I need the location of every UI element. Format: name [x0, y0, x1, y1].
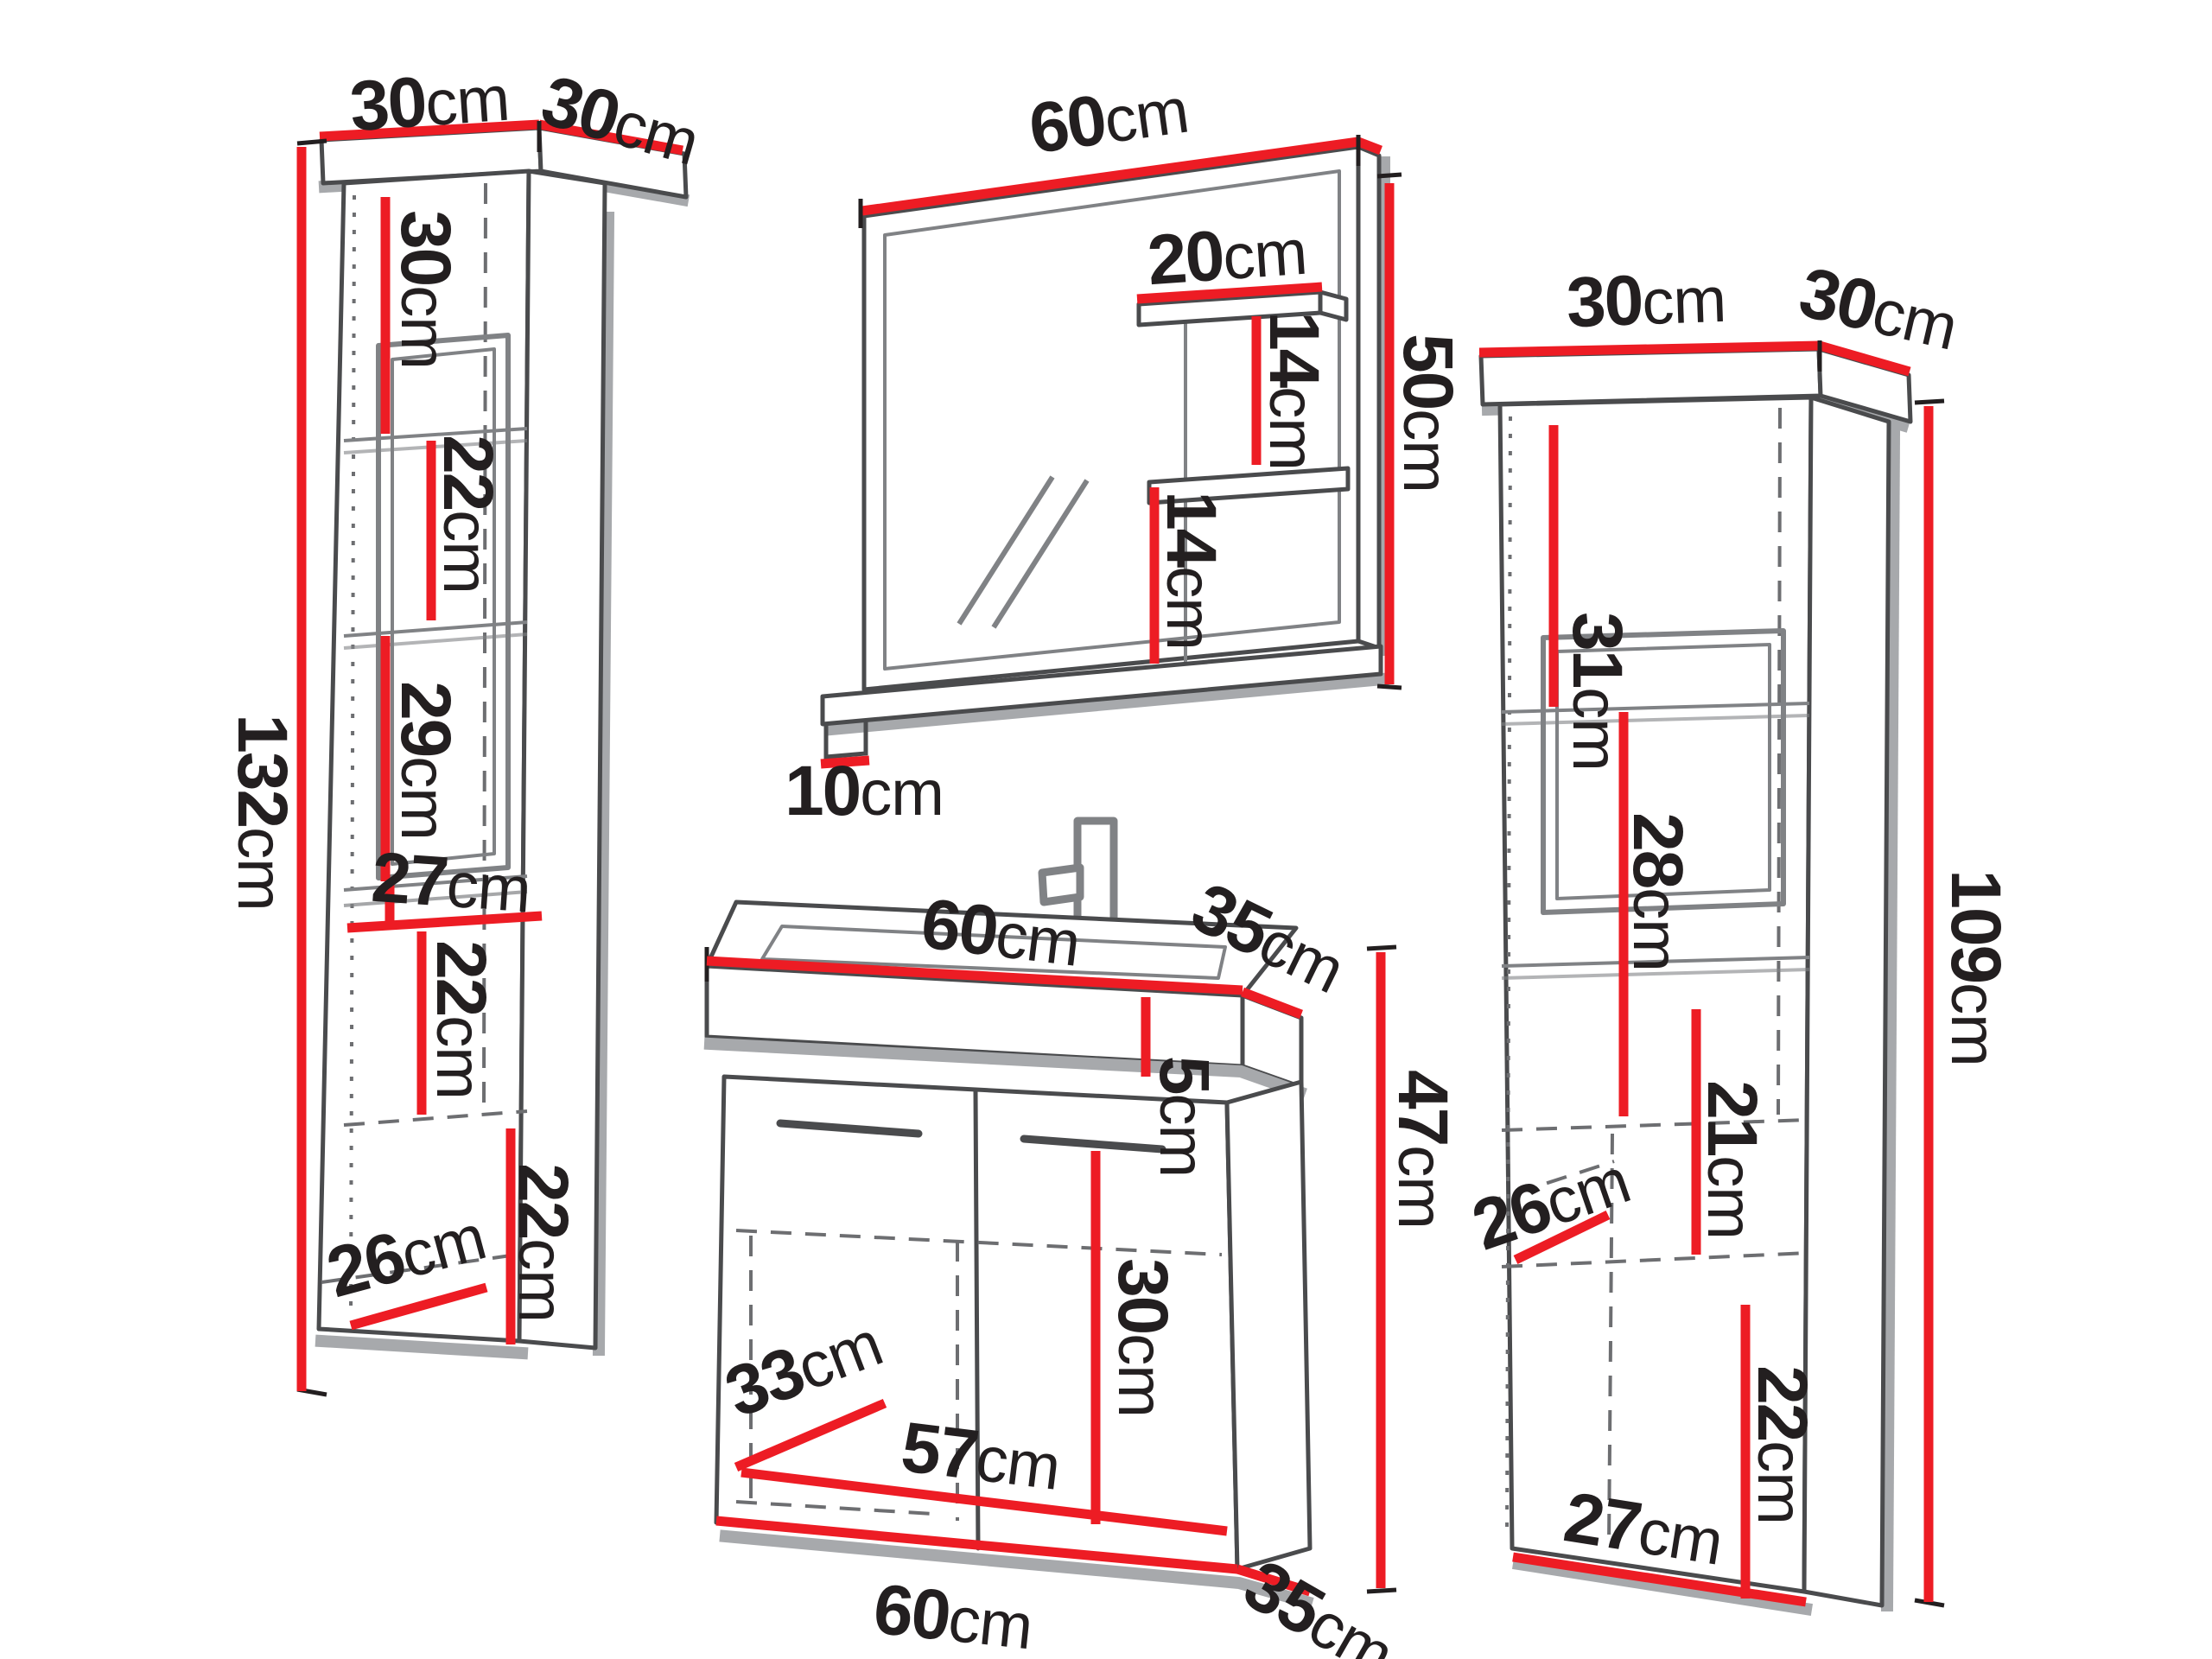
- unit: cm: [1938, 982, 2010, 1066]
- unit: cm: [423, 1015, 495, 1099]
- dim-mirror-shelf-gap-1: 14cm: [1258, 311, 1329, 470]
- unit: cm: [1390, 409, 1462, 493]
- unit: cm: [1385, 1145, 1457, 1229]
- dim-left-top-width: 30cm: [347, 61, 511, 143]
- value: 50: [1389, 334, 1467, 409]
- unit: cm: [1256, 386, 1328, 470]
- dim-right-section-3: 21cm: [1696, 1080, 1767, 1239]
- unit: cm: [972, 1422, 1064, 1503]
- value: 22: [429, 435, 507, 510]
- unit: cm: [1745, 1440, 1816, 1524]
- value: 60: [1025, 80, 1110, 168]
- dim-right-top-width: 30cm: [1566, 263, 1727, 339]
- left-cabinet-outline: [297, 121, 686, 1395]
- dim-right-section-1: 31cm: [1561, 612, 1632, 771]
- dim-right-height: 109cm: [1940, 869, 2011, 1065]
- unit: cm: [1620, 887, 1692, 971]
- value: 5: [1145, 1056, 1224, 1094]
- dim-sink-inner-height: 30cm: [1107, 1258, 1178, 1417]
- dim-sink-cabinet-height: 47cm: [1387, 1070, 1458, 1229]
- value: 20: [1145, 216, 1225, 300]
- dim-mirror-height: 50cm: [1392, 334, 1463, 493]
- dim-left-section-4: 22cm: [425, 940, 496, 1099]
- unit: cm: [388, 756, 460, 840]
- unit: cm: [1147, 1093, 1218, 1177]
- unit: cm: [1634, 1495, 1727, 1579]
- dim-left-section-3: 29cm: [390, 681, 461, 840]
- value: 29: [386, 681, 465, 756]
- unit: cm: [1154, 566, 1225, 650]
- unit: cm: [225, 827, 296, 911]
- dim-sink-basin-height: 5cm: [1148, 1056, 1219, 1177]
- unit: cm: [1641, 264, 1726, 338]
- unit: cm: [1221, 216, 1309, 294]
- value: 10: [785, 752, 860, 830]
- value: 22: [422, 940, 500, 1015]
- value: 30: [386, 210, 465, 285]
- value: 30: [1566, 261, 1643, 342]
- value: 109: [1936, 869, 2015, 982]
- dim-mirror-ledge-depth: 10cm: [785, 756, 944, 827]
- dim-left-inner-width: 27cm: [369, 842, 532, 925]
- unit: cm: [860, 757, 944, 829]
- unit: cm: [1560, 687, 1631, 771]
- dim-right-section-4: 22cm: [1746, 1365, 1817, 1524]
- unit: cm: [444, 849, 532, 926]
- value: 132: [223, 714, 302, 827]
- dim-left-height: 132cm: [226, 714, 297, 910]
- value: 14: [1255, 311, 1333, 386]
- unit: cm: [505, 1238, 577, 1322]
- dim-left-section-2: 22cm: [432, 435, 503, 594]
- unit: cm: [1100, 74, 1192, 157]
- unit: cm: [1694, 1155, 1766, 1239]
- value: 21: [1693, 1080, 1771, 1155]
- unit: cm: [423, 62, 512, 140]
- dim-mirror-shelf-width: 20cm: [1145, 215, 1308, 297]
- right-cabinet-outline: [1479, 340, 1944, 1609]
- value: 57: [897, 1408, 982, 1495]
- unit: cm: [388, 285, 460, 369]
- value: 27: [369, 838, 449, 922]
- value: 22: [1743, 1365, 1821, 1440]
- unit: cm: [945, 1583, 1036, 1659]
- value: 30: [1103, 1258, 1182, 1333]
- value: 60: [870, 1570, 953, 1656]
- dim-left-section-5: 22cm: [507, 1163, 578, 1322]
- value: 30: [347, 62, 428, 146]
- furniture-dimensions-diagram: 30cm 30cm 132cm 30cm 22cm 29cm 27cm 22cm…: [0, 0, 2212, 1659]
- unit: cm: [430, 510, 502, 594]
- dim-mirror-shelf-gap-2: 14cm: [1155, 491, 1226, 650]
- value: 22: [504, 1163, 582, 1238]
- value: 14: [1152, 491, 1230, 566]
- value: 28: [1618, 812, 1697, 887]
- dim-left-section-1: 30cm: [390, 210, 461, 369]
- unit: cm: [992, 899, 1084, 980]
- value: 47: [1383, 1070, 1462, 1145]
- value: 27: [1559, 1478, 1645, 1567]
- value: 60: [917, 884, 1001, 971]
- unit: cm: [1105, 1333, 1177, 1417]
- dim-right-section-2: 28cm: [1622, 812, 1693, 971]
- value: 31: [1558, 612, 1637, 687]
